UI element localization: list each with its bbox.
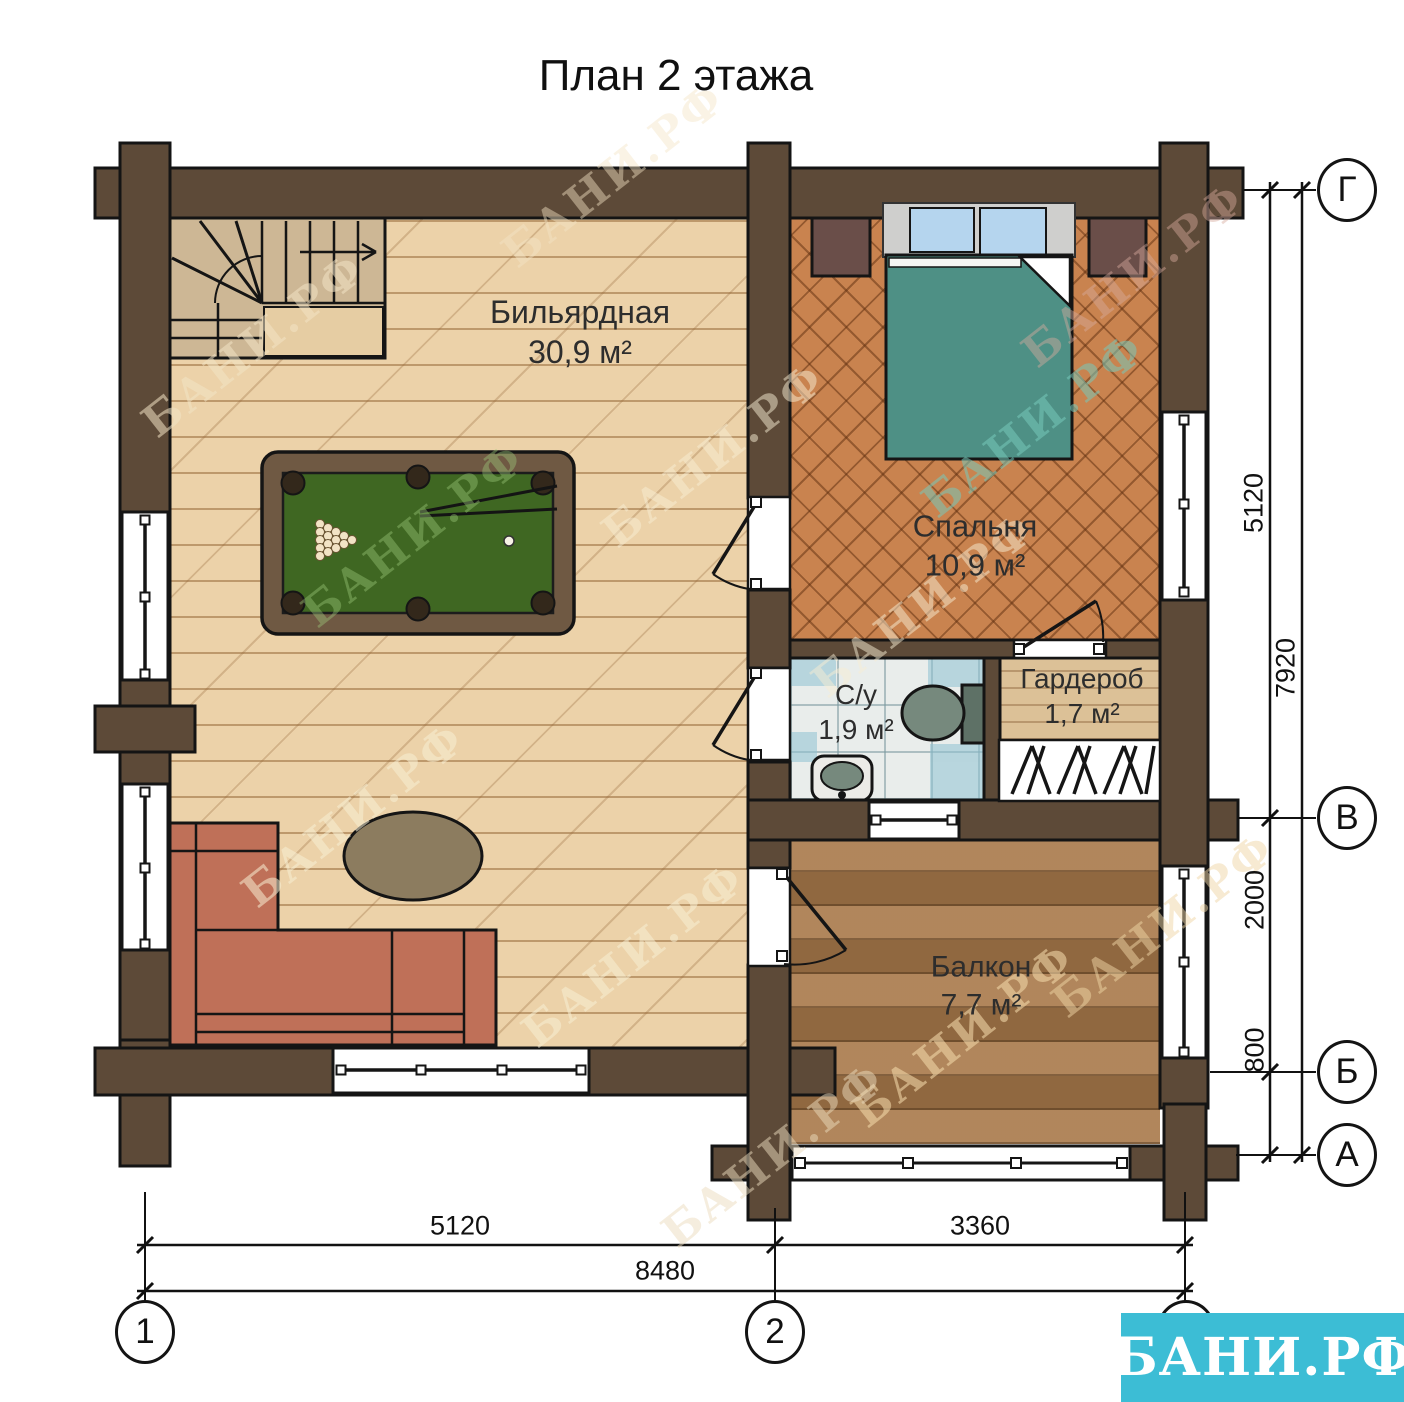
- bed: [886, 255, 1072, 459]
- page-title: План 2 этажа: [539, 51, 814, 101]
- axis-marker-v: В: [1317, 786, 1377, 850]
- window-left-upper: [122, 512, 168, 680]
- window-bedroom-right: [1162, 412, 1206, 600]
- window-pane: [980, 208, 1046, 256]
- brand-logo: БАНИ.РФ: [1121, 1313, 1404, 1402]
- room-label-wardrobe: Гардероб 1,7 м²: [1020, 661, 1143, 731]
- nightstand-left: [812, 218, 870, 276]
- dim-right-5120: 5120: [1239, 473, 1270, 533]
- cue-ball: [504, 536, 514, 546]
- dim-bottom-8480: 8480: [635, 1256, 695, 1287]
- nightstand-right: [1089, 218, 1146, 276]
- staircase: [170, 218, 385, 358]
- axis-marker-a: А: [1317, 1123, 1377, 1187]
- door-wardrobe: [1014, 601, 1106, 658]
- door-balcony: [748, 868, 846, 966]
- axis-marker-b: Б: [1317, 1040, 1377, 1104]
- room-label-bathroom: С/у 1,9 м²: [818, 677, 893, 747]
- coffee-table: [344, 812, 482, 900]
- bed-window-niche: [883, 203, 1075, 257]
- window-left-lower: [122, 784, 168, 950]
- wardrobe-rail-symbol: [999, 740, 1160, 801]
- room-label-billiard: Бильярдная 30,9 м²: [490, 292, 670, 372]
- window-pane: [910, 208, 974, 252]
- toilet: [902, 685, 988, 743]
- dim-right-2000: 2000: [1240, 870, 1271, 930]
- axis-marker-g: Г: [1317, 158, 1377, 222]
- dim-right-800: 800: [1240, 1027, 1271, 1072]
- sink: [812, 756, 872, 801]
- axis-marker-1: 1: [115, 1300, 175, 1364]
- window-billiard-bottom: [333, 1048, 589, 1093]
- dim-bottom-3360: 3360: [950, 1211, 1010, 1242]
- dim-right-7920: 7920: [1271, 638, 1302, 698]
- door-bedroom: [713, 497, 790, 589]
- door-bathroom: [713, 668, 790, 760]
- room-label-balcony: Балкон 7,7 м²: [931, 949, 1032, 1024]
- floor-plan-canvas: План 2 этажа: [0, 0, 1404, 1402]
- plan-drawing: [0, 0, 1404, 1402]
- room-label-bedroom: Спальня 10,9 м²: [913, 507, 1038, 585]
- balcony-railing: [792, 1146, 1130, 1180]
- billiard-table: [262, 452, 574, 634]
- window-balcony-right: [1162, 866, 1206, 1058]
- dim-bottom-5120: 5120: [430, 1211, 490, 1242]
- brand-logo-text: БАНИ.РФ: [1113, 1327, 1404, 1388]
- axis-marker-2: 2: [745, 1300, 805, 1364]
- window-bathroom-balcony: [869, 802, 959, 839]
